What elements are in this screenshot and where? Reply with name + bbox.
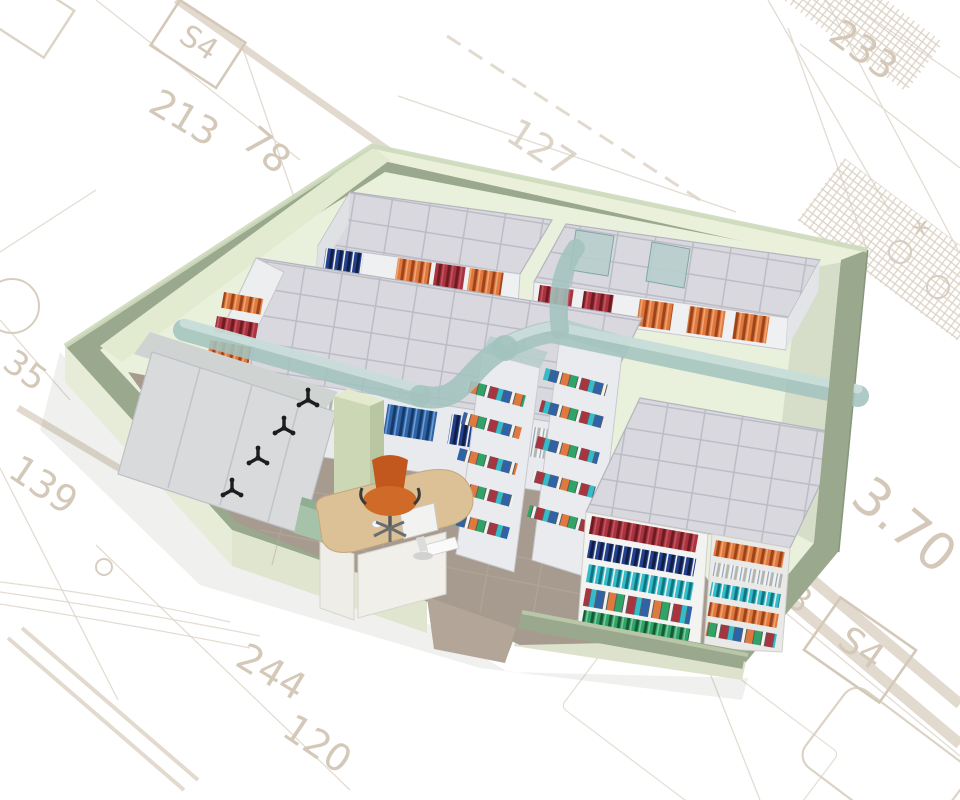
blueprint-wall-band-bottom-left — [8, 628, 198, 790]
scene-canvas: S4 213 78 127 233 35 139 244 120 3.70 18… — [0, 0, 960, 800]
binder-row — [732, 312, 769, 343]
binder-row — [686, 306, 725, 338]
desk-cabinet — [320, 542, 354, 620]
glass-cabinet — [646, 242, 690, 288]
blueprint-curved-lines — [0, 582, 260, 648]
blueprint-label-3-70: 3.70 — [840, 466, 960, 586]
binder-row — [636, 299, 673, 330]
render-stage: S4 213 78 127 233 35 139 244 120 3.70 18… — [0, 0, 960, 800]
monitor-base — [413, 552, 433, 560]
room-render — [40, 146, 867, 700]
blueprint-label-120: 120 — [275, 705, 360, 782]
blueprint-label-213: 213 — [142, 80, 227, 155]
duct-junction — [492, 335, 518, 361]
blueprint-label-35: 35 — [0, 342, 54, 400]
office-chair-seat — [363, 486, 417, 516]
blueprint-label-244: 244 — [229, 634, 314, 709]
blueprint-label-78: 78 — [234, 118, 299, 183]
